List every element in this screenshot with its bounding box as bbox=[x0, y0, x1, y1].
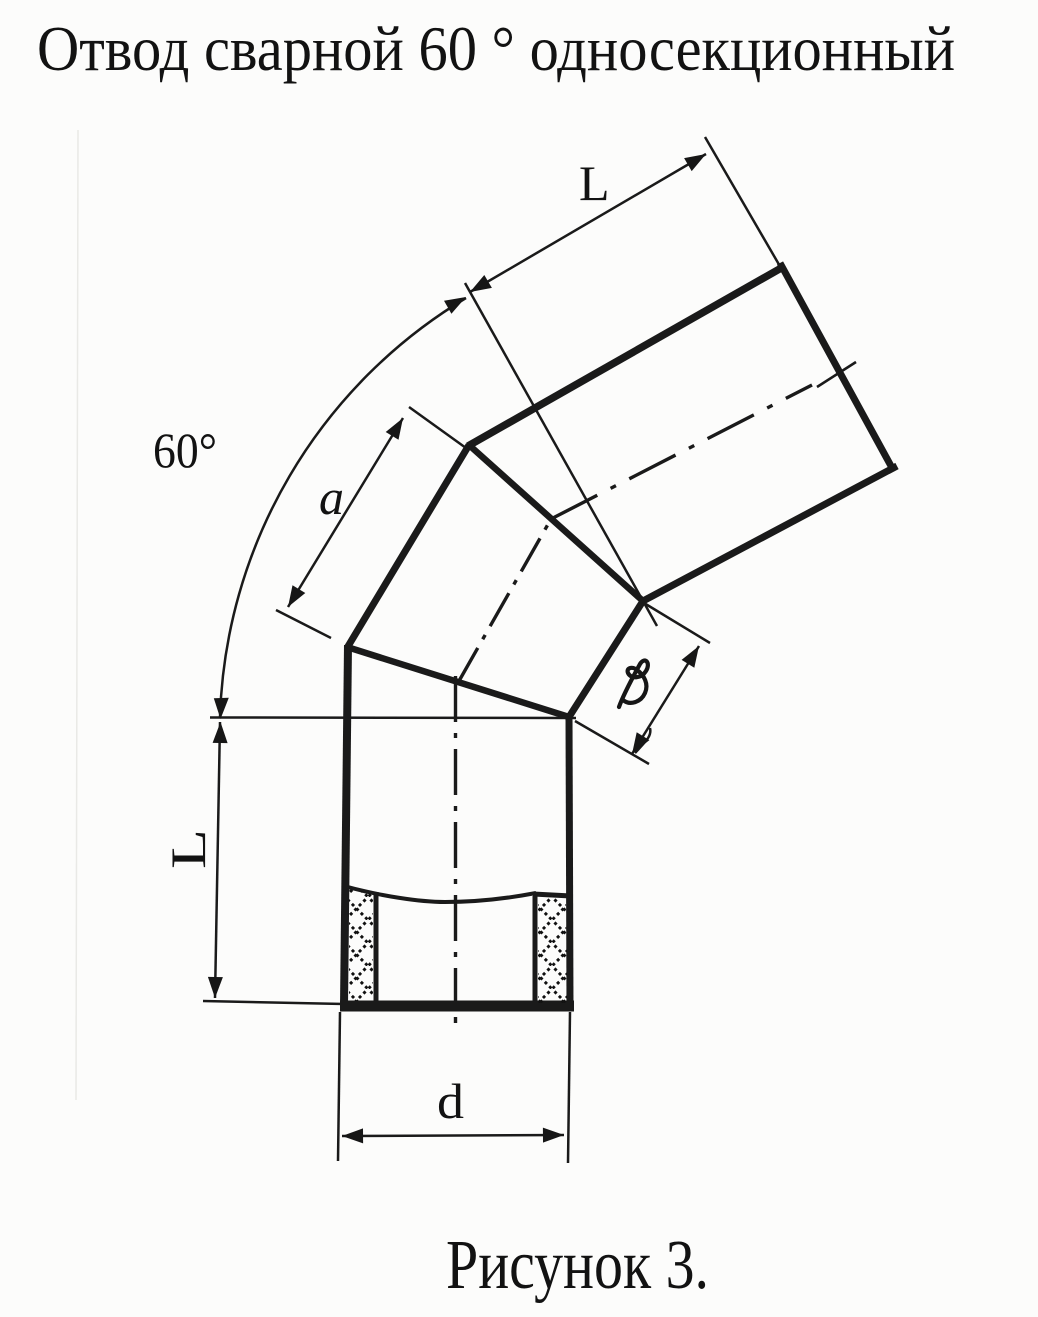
svg-text:60°: 60° bbox=[153, 422, 217, 478]
svg-text:L: L bbox=[160, 829, 216, 869]
svg-text:Рисунок 3.: Рисунок 3. bbox=[446, 1227, 709, 1304]
svg-text:L: L bbox=[579, 155, 610, 211]
svg-text:d: d bbox=[437, 1073, 464, 1129]
svg-text:Отвод сварной 60 ° односекцион: Отвод сварной 60 ° односекционный bbox=[37, 13, 955, 84]
svg-text:a: a bbox=[319, 469, 344, 525]
